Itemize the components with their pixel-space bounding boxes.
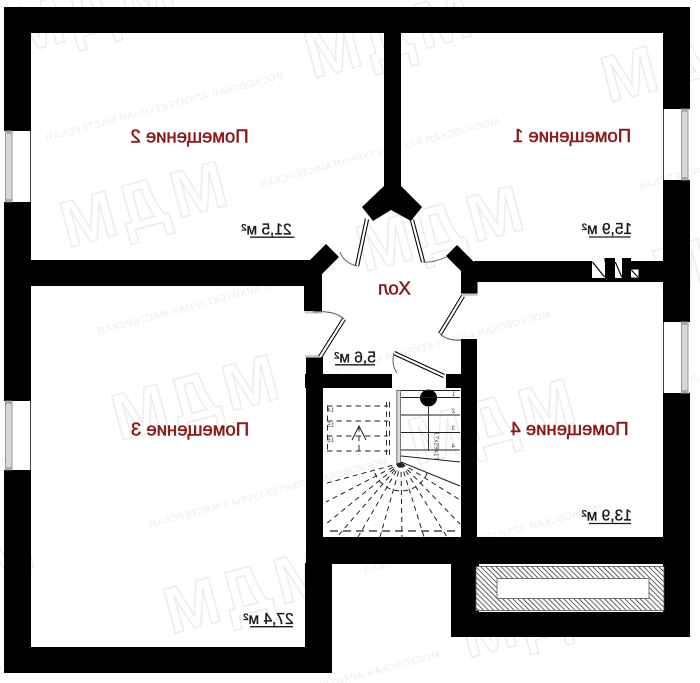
svg-text:27,4 м²: 27,4 м² (243, 611, 293, 628)
svg-text:17х29х17: 17х29х17 (433, 432, 439, 461)
svg-text:Хол: Хол (378, 278, 411, 299)
svg-text:Помещение 4: Помещение 4 (510, 418, 628, 439)
svg-text:13,9 м²: 13,9 м² (582, 508, 632, 525)
svg-text:14: 14 (327, 408, 334, 414)
svg-text:15: 15 (327, 423, 334, 429)
svg-text:21,5 м²: 21,5 м² (241, 222, 291, 239)
svg-text:Помещение 2: Помещение 2 (130, 126, 248, 147)
svg-text:16: 16 (327, 438, 334, 444)
svg-text:Помещение 1: Помещение 1 (513, 125, 631, 146)
svg-text:15,9 м²: 15,9 м² (582, 221, 632, 238)
svg-text:5,6 м²: 5,6 м² (334, 350, 376, 367)
svg-text:Помещение 3: Помещение 3 (131, 419, 249, 440)
